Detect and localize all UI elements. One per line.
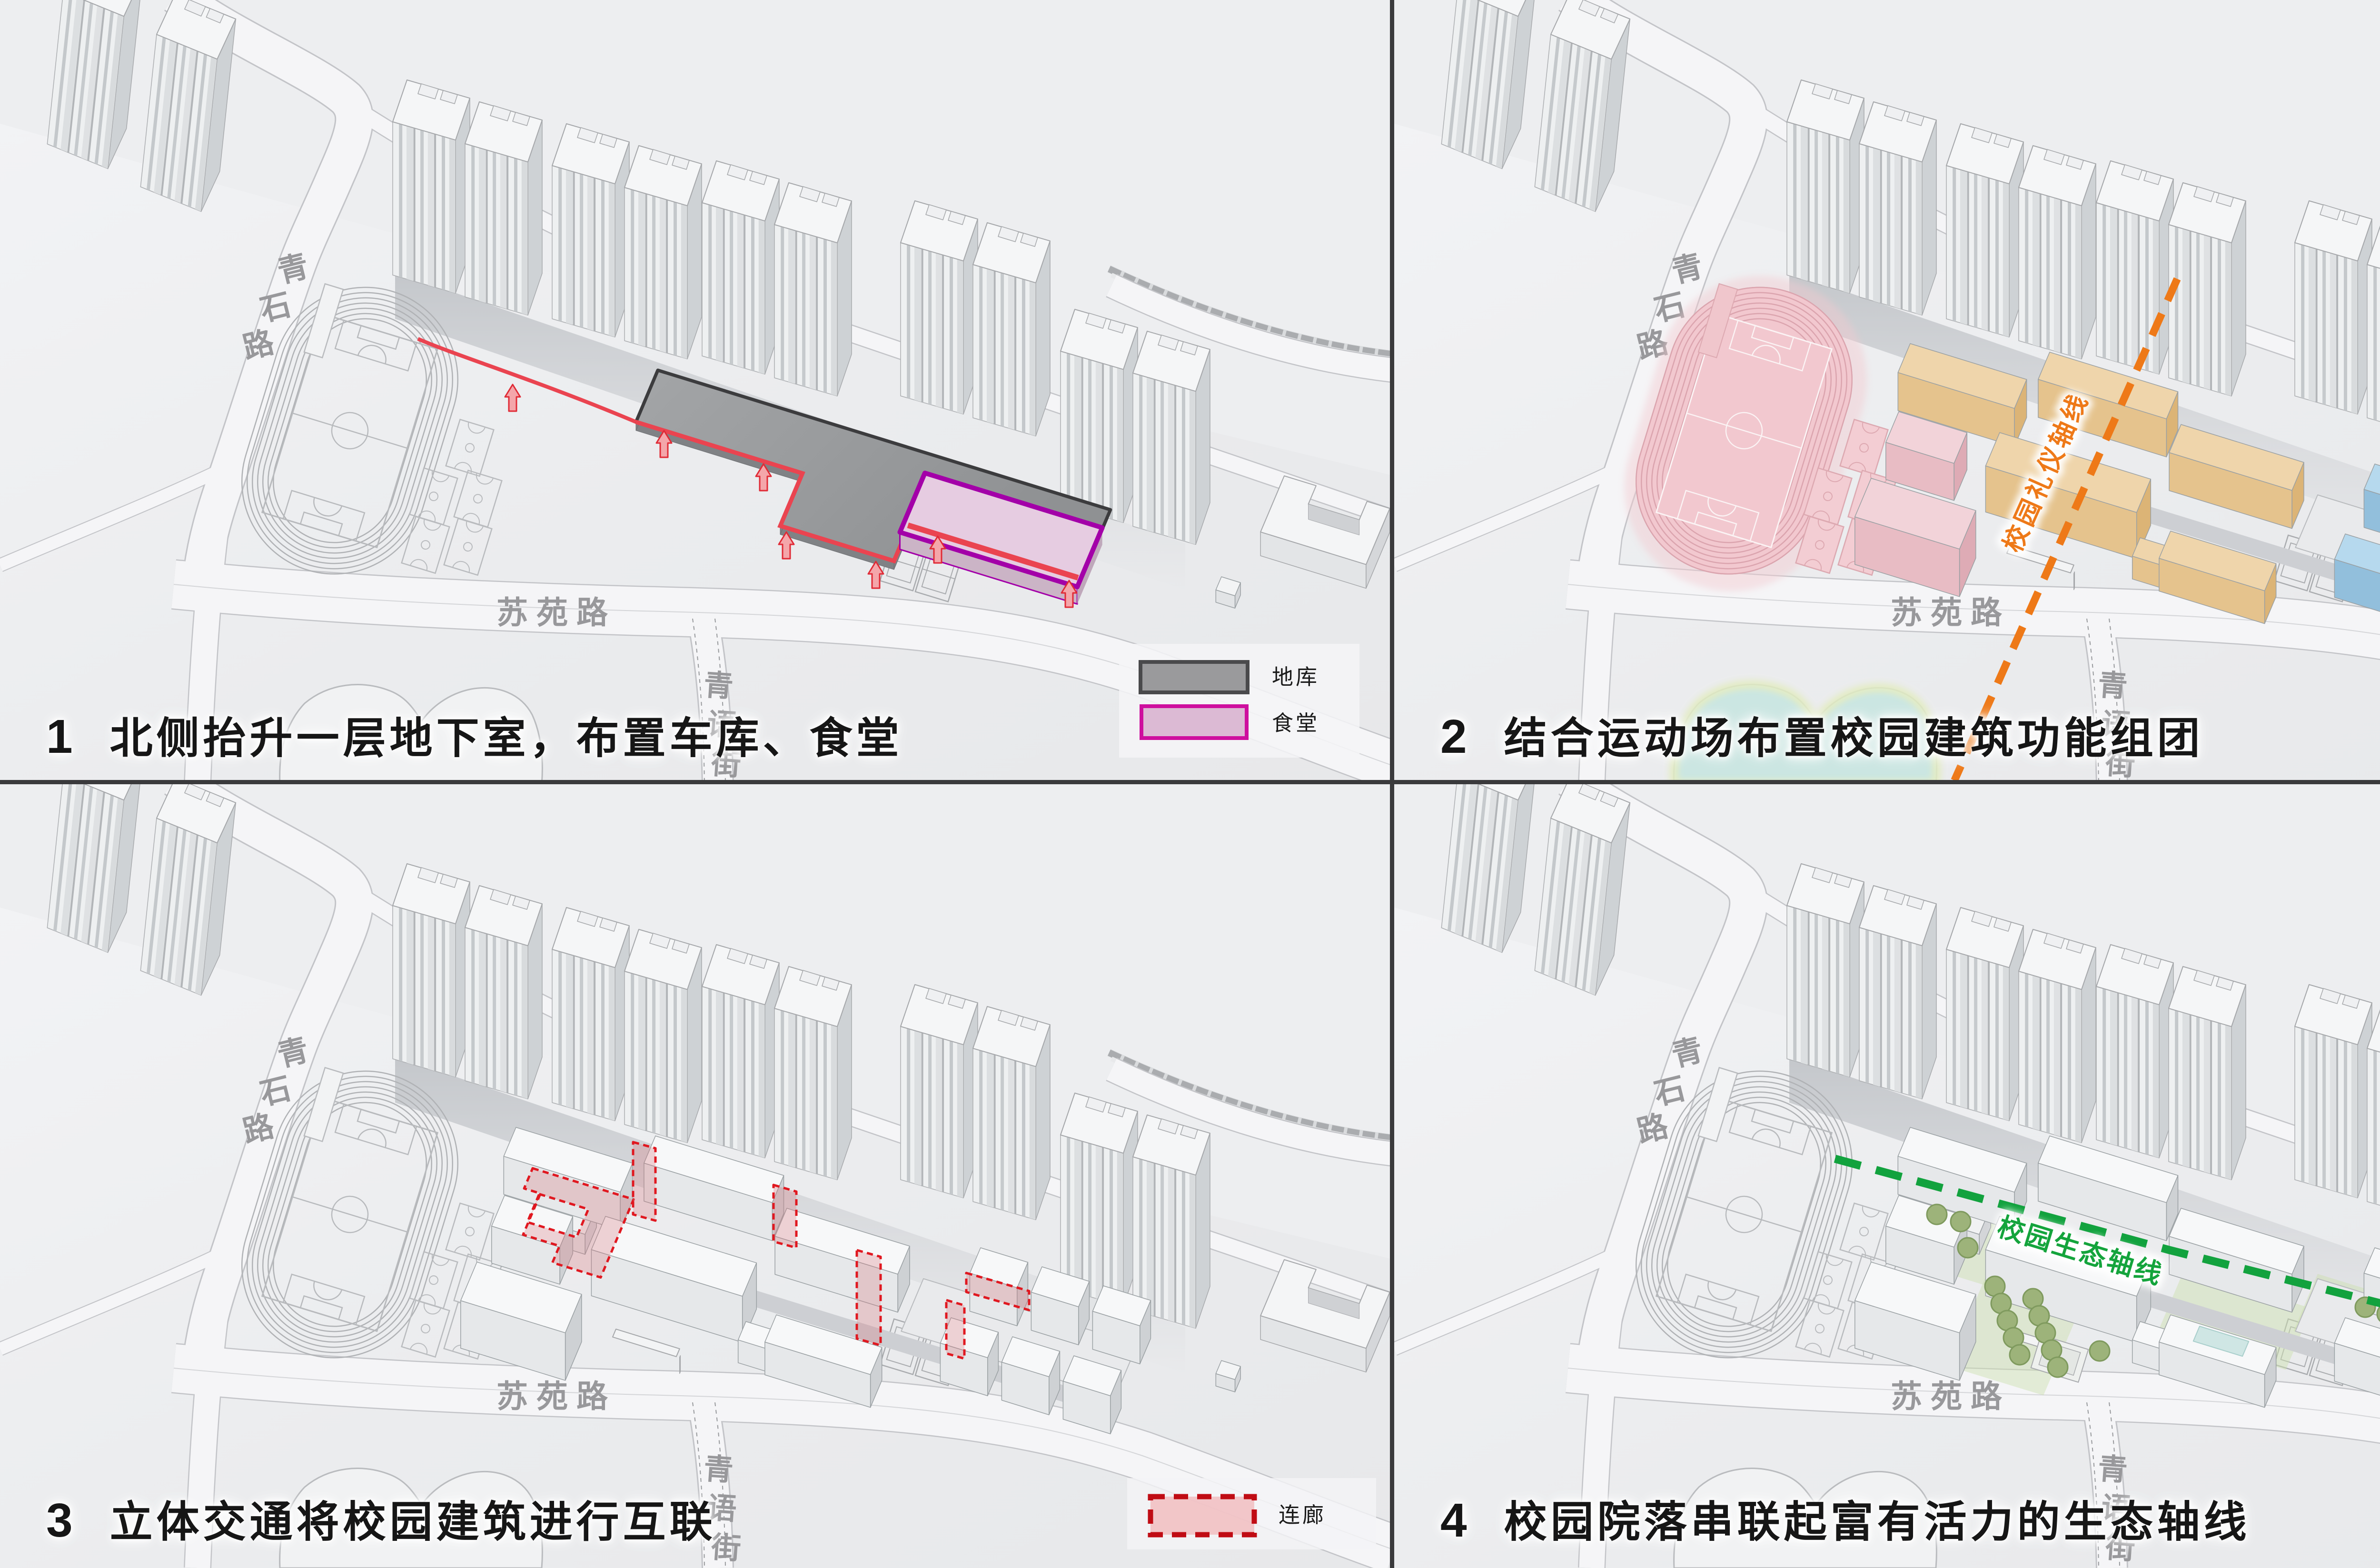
svg-text:连廊: 连廊 [1279,1503,1326,1527]
svg-text:地库: 地库 [1272,665,1319,689]
svg-text:食堂: 食堂 [1272,711,1319,735]
